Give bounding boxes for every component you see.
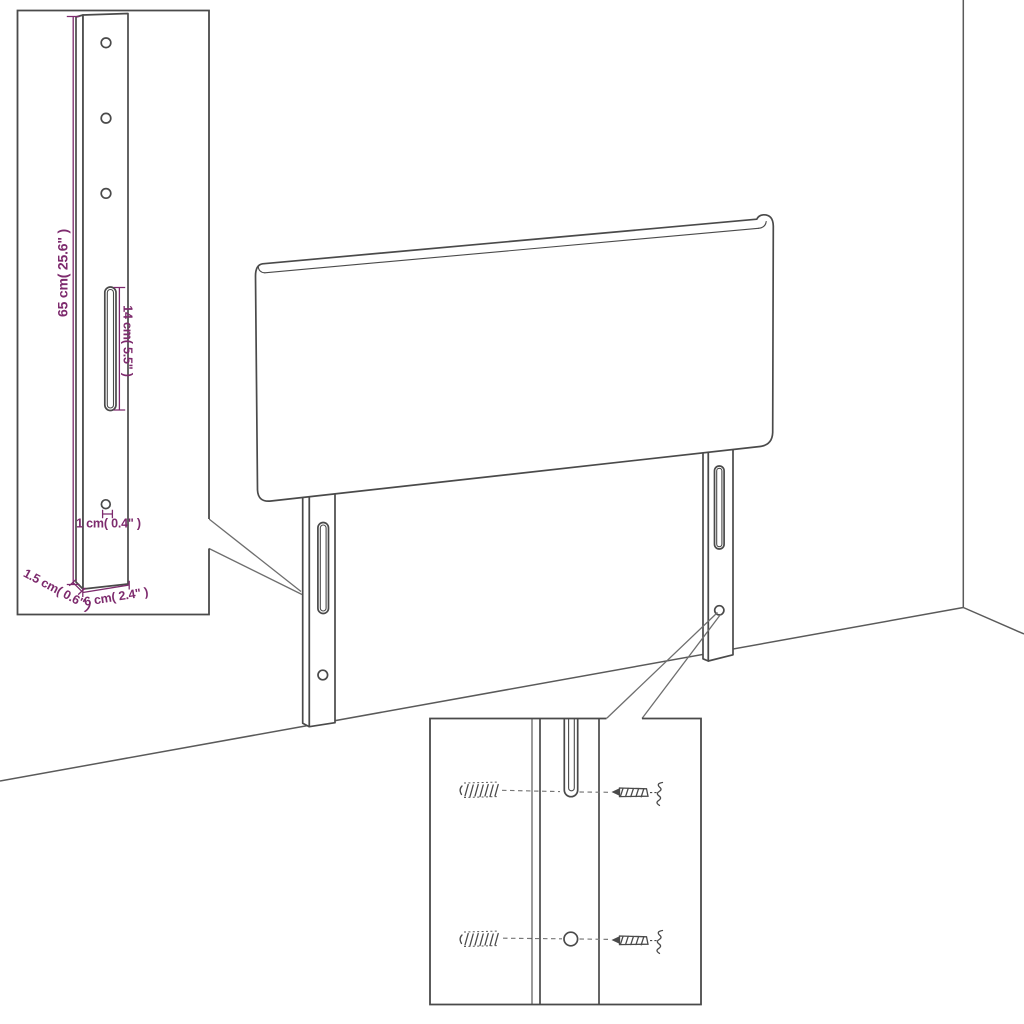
diagram-canvas: 65 cm( 25.6" ) 14 cm( 5.5" ) 1 cm( 0.4" …: [0, 0, 1024, 1024]
bracket-hole-3: [101, 189, 111, 199]
bracket-slot: [105, 287, 116, 411]
right-leg-slot: [715, 466, 725, 549]
floor-line-right: [963, 608, 1024, 635]
bracket-side-face: [76, 15, 83, 589]
left-leg-side-face: [303, 495, 310, 727]
bracket-bottom-hole: [101, 500, 110, 509]
headboard-face: [256, 215, 774, 501]
left-leg-hole: [318, 670, 328, 680]
bracket-hole-1: [101, 38, 111, 48]
leg-strip-hole: [564, 932, 578, 946]
left-leg-slot: [318, 523, 329, 614]
bracket-hole-2: [101, 113, 111, 123]
callout-lines: [209, 519, 721, 719]
headboard: [256, 215, 774, 501]
mounting-detail-inset: [430, 719, 701, 1005]
right-leg: [703, 447, 733, 662]
left-leg: [303, 492, 335, 727]
mounting-inset-background: [430, 719, 701, 1005]
dim-hole-label: 1 cm( 0.4" ): [76, 517, 141, 531]
dim-height-label: 65 cm( 25.6" ): [54, 229, 70, 317]
bracket-detail-inset: 65 cm( 25.6" ) 14 cm( 5.5" ) 1 cm( 0.4" …: [18, 11, 210, 615]
dim-slot-label: 14 cm( 5.5" ): [121, 305, 135, 376]
callout-line-mount-right: [642, 615, 721, 719]
callout-line-mount-left: [607, 613, 718, 719]
product-dimension-diagram: 65 cm( 25.6" ) 14 cm( 5.5" ) 1 cm( 0.4" …: [0, 0, 1024, 1024]
